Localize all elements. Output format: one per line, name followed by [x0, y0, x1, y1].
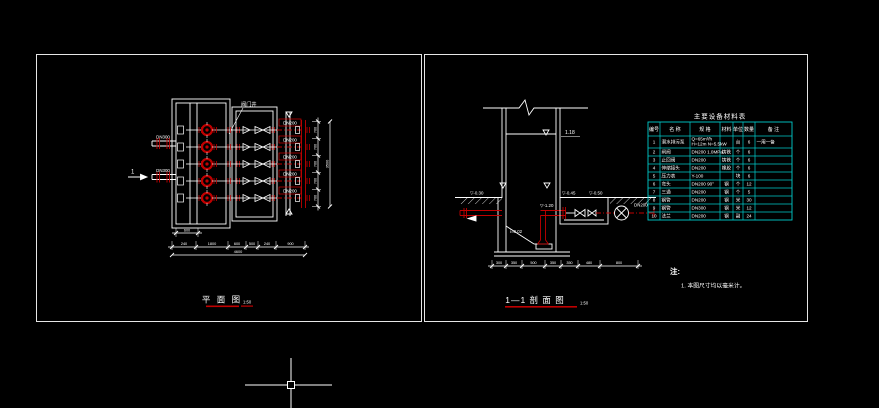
riser-pipe: [538, 207, 567, 244]
dim-total-label: 3500: [326, 160, 330, 168]
table-cell: 5: [748, 190, 751, 195]
table-cell: 个: [736, 190, 741, 195]
pump-symbol: [205, 196, 208, 199]
inlet-pipe-section: [460, 208, 502, 218]
table-cell: 副: [736, 213, 741, 220]
table-cell: 6: [748, 158, 751, 163]
dimension-chain-section: 300350500350350480800: [488, 260, 642, 269]
elevation-top-label: 1.18: [565, 130, 575, 136]
dim-label: 500: [530, 261, 536, 265]
section-cut-marker: 1: [128, 170, 147, 180]
table-cell: 钢: [724, 189, 729, 196]
table-header-cell: 编号: [649, 126, 659, 133]
dim-label: 600: [184, 229, 190, 233]
table-cell: 4: [653, 166, 656, 171]
shaft-top-break-line: [483, 100, 588, 115]
marker-triangle-icon: [286, 209, 292, 214]
table-cell: 6: [748, 166, 751, 171]
table-cell: 9: [653, 206, 656, 211]
table-cell: 12: [746, 206, 752, 211]
dimension-well-width: 600: [172, 228, 202, 237]
table-cell: 块: [736, 173, 741, 180]
dim-total-label: 4600: [234, 250, 242, 254]
dim-label: 350: [511, 261, 517, 265]
table-header-cell: 数量: [744, 126, 754, 133]
table-cell: 铸铁: [722, 149, 732, 156]
table-cell: DN200: [692, 158, 707, 163]
table-cell: 钢管: [662, 205, 672, 212]
plan-view-title: 平 面 图: [202, 295, 242, 305]
table-cell: 弯头: [662, 181, 672, 188]
table-cell: 6: [748, 174, 751, 179]
notes-label: 注:: [670, 266, 680, 276]
section-view-scale: 1:50: [580, 301, 589, 306]
pump-symbol: [205, 162, 208, 165]
table-cell: 个: [736, 166, 741, 171]
wall-sleeve: [178, 177, 184, 185]
table-cell: 钢: [724, 205, 729, 212]
table-cell: 橡胶: [722, 165, 732, 172]
dim-label: 350: [550, 261, 556, 265]
dim-label: 700: [314, 144, 318, 150]
table-cell: 钢: [724, 181, 729, 188]
table-cell: DN200 1.0MPa: [692, 150, 724, 155]
table-cell: 30: [746, 198, 752, 203]
cad-drawing-canvas[interactable]: 阀门井 DN300 DN300 1: [0, 0, 879, 408]
dim-label: 600: [234, 242, 240, 246]
wall-sleeve: [178, 143, 184, 151]
right-panel: 1.18: [425, 55, 808, 322]
table-cell: 6: [748, 150, 751, 155]
callout-label: 阀门井: [241, 100, 257, 108]
pipe-label: DN200: [283, 137, 297, 142]
dim-label: 1800: [208, 242, 216, 246]
dim-label: 240: [181, 242, 187, 246]
table-header-cell: 材料: [721, 126, 731, 133]
level-marker-icon: [500, 183, 506, 188]
table-cell: 一用一备: [757, 139, 776, 146]
inlet-label: DN300: [156, 135, 170, 140]
table-cell: DN200: [692, 214, 707, 219]
dimension-chain-right: 7007007007007003500: [312, 118, 332, 211]
marker-triangle-icon: [286, 112, 292, 117]
table-header-cell: 单位: [733, 126, 743, 133]
slope-label: i=0.02: [510, 229, 523, 234]
table-cell: 个: [736, 158, 741, 163]
dim-label: 900: [287, 242, 293, 246]
materials-table: 编号名 称规 格材料单位数量备 注1潜水排污泵Q=65m³/hH=12m N=5…: [648, 122, 792, 220]
wall-sleeve: [178, 194, 184, 202]
dim-label: 700: [314, 195, 318, 201]
table-cell: 24: [746, 214, 752, 219]
wall-sleeve: [178, 126, 184, 134]
table-cell: Q=65m³/hH=12m N=5.5kW: [692, 137, 728, 147]
table-cell: 米: [736, 205, 741, 212]
elevation-label: ▽-1.20: [540, 203, 554, 208]
table-cell: 法兰: [662, 213, 672, 220]
title-underline: [206, 306, 239, 308]
table-cell: 6: [653, 182, 656, 187]
dim-label: 700: [314, 178, 318, 184]
left-panel-border: [37, 55, 422, 322]
table-cell: 伸缩接头: [662, 165, 681, 172]
scale-underline: [241, 306, 253, 307]
pipe-label: DN200: [283, 188, 297, 193]
section-view-title: 1—1 剖 面 图: [505, 295, 565, 305]
table-cell: 2: [653, 150, 656, 155]
left-panel: 阀门井 DN300 DN300 1: [37, 55, 422, 322]
table-cell: 三通: [662, 189, 672, 196]
table-cell: 米: [736, 197, 741, 204]
level-marker-icon: [544, 183, 550, 188]
table-cell: DN300: [692, 206, 707, 211]
plan-view-scale: 1:50: [243, 300, 252, 305]
check-valve-icon: [580, 210, 585, 217]
ground-hatch: [460, 198, 502, 204]
table-header-cell: 名 称: [669, 126, 680, 133]
notes-item: 1. 本图尺寸均以毫米计。: [681, 282, 745, 290]
pipe-label: DN200: [283, 154, 297, 159]
table-cell: 10: [651, 214, 657, 219]
table-cell: DN200 90°: [692, 182, 715, 187]
dim-label: 480: [586, 261, 592, 265]
dim-label: 350: [566, 261, 572, 265]
cad-svg: 阀门井 DN300 DN300 1: [0, 0, 879, 408]
pump-symbol: [205, 145, 208, 148]
dim-label: 300: [496, 261, 502, 265]
table-header-cell: 规 格: [699, 126, 710, 133]
crosshair-cursor: [245, 358, 332, 408]
inlet-label: DN300: [156, 168, 170, 173]
table-header-cell: 备 注: [768, 126, 779, 133]
dim-label: 700: [314, 161, 318, 167]
table-cell: 止回阀: [662, 157, 676, 164]
pipe-size-label: DN200: [634, 203, 648, 208]
table-cell: 8: [653, 198, 656, 203]
table-cell: 12: [746, 182, 752, 187]
table-cell: 6: [748, 140, 751, 145]
table-cell: 钢: [724, 213, 729, 220]
elevation-label: ▽-0.50: [589, 191, 603, 196]
table-cell: 个: [736, 150, 741, 155]
table-cell: 1: [653, 140, 656, 145]
materials-table-title: 主要设备材料表: [694, 112, 747, 121]
pump-symbol: [205, 179, 208, 182]
table-cell: 钢: [724, 197, 729, 204]
table-cell: DN200: [692, 190, 707, 195]
dim-label: 800: [616, 261, 622, 265]
dimension-chain-bottom: 24018006005002409004600: [168, 241, 309, 257]
pump-symbol: [205, 128, 208, 131]
table-cell: DN200: [692, 166, 707, 171]
table-cell: 压力表: [662, 173, 676, 180]
table-cell: 3: [653, 158, 656, 163]
table-cell: 钢管: [662, 197, 672, 204]
pump-pedestal: [536, 244, 552, 249]
table-cell: 个: [736, 182, 741, 187]
dim-label: 500: [249, 242, 255, 246]
wall-sleeve: [178, 160, 184, 168]
pickbox: [288, 382, 295, 389]
table-cell: 5: [653, 174, 656, 179]
table-cell: 闸阀: [662, 149, 672, 156]
table-cell: 台: [736, 139, 741, 146]
table-cell: 潜水排污泵: [662, 139, 685, 146]
table-cell: DN200: [692, 198, 707, 203]
table-cell: 铸铁: [722, 157, 732, 164]
pipe-label: DN200: [283, 171, 297, 176]
pipe-label: DN200: [283, 120, 297, 125]
section-cut-number: 1: [131, 170, 135, 176]
elevation-label: ▽-0.45: [562, 191, 576, 196]
dim-label: 240: [264, 242, 270, 246]
title-underline: [505, 306, 577, 308]
table-cell: Y-100: [692, 174, 704, 179]
table-cell: 7: [653, 190, 656, 195]
gate-valve-icon: [592, 210, 596, 216]
dim-label: 700: [314, 127, 318, 133]
flow-arrow-icon: [468, 216, 476, 221]
elevation-label: ▽-0.30: [470, 191, 484, 196]
